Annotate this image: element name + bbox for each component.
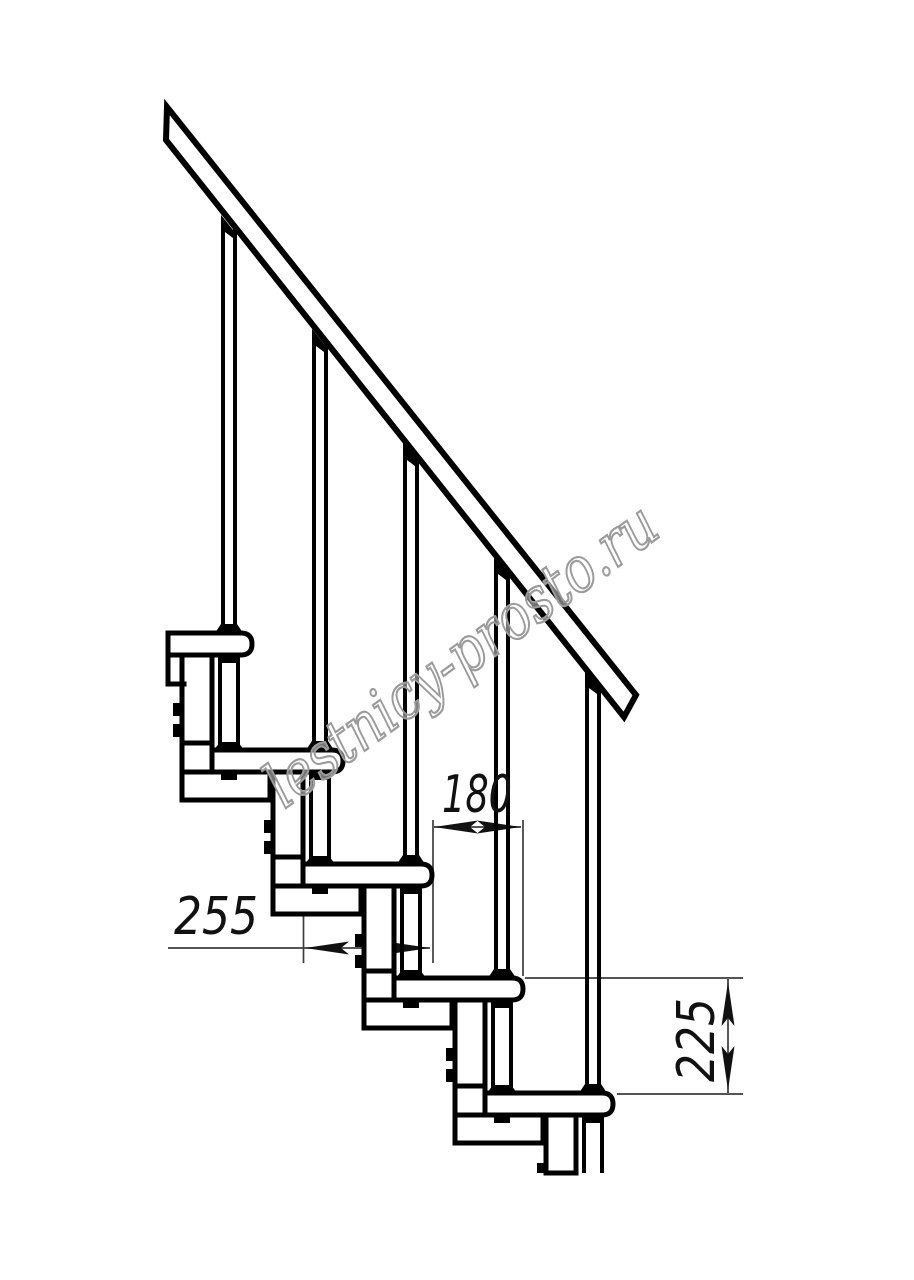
baluster-flange-icon	[579, 1084, 607, 1093]
dimension-label-rise: 225	[667, 998, 727, 1082]
nut-icon	[403, 1000, 419, 1008]
bolt-icon	[264, 820, 273, 833]
baluster	[585, 671, 601, 1093]
bolt-icon	[264, 841, 273, 854]
nut-icon	[221, 772, 237, 780]
baluster	[312, 329, 328, 750]
nut-icon	[585, 1115, 601, 1123]
dimension-label-tread-depth: 255	[174, 887, 258, 947]
bolt-icon	[446, 1048, 455, 1061]
tread	[303, 864, 432, 886]
dimension-labels: 180 255 225	[174, 765, 727, 1082]
bolt-icon	[355, 934, 364, 947]
nut-icon	[221, 655, 237, 663]
baluster-lower	[220, 655, 238, 750]
baluster-flange-icon	[397, 855, 425, 864]
bolt-icon	[446, 1069, 455, 1082]
nut-icon	[494, 1000, 510, 1008]
bolt-icon	[537, 1163, 546, 1173]
tread	[485, 1093, 613, 1115]
nut-icon	[312, 886, 328, 894]
baluster-lower	[584, 1115, 602, 1173]
baluster-lower	[402, 886, 420, 978]
baluster	[221, 215, 237, 633]
tread	[394, 978, 523, 1000]
baluster-flange-icon	[488, 969, 516, 978]
bolt-icon	[173, 724, 182, 737]
baluster-lower	[493, 1000, 511, 1093]
bolt-icon	[173, 703, 182, 716]
nut-icon	[494, 1115, 510, 1123]
nut-icon	[403, 886, 419, 894]
staircase-side-view-drawing: 180 255 225 lestnicy-prosto.ru	[0, 0, 914, 1280]
bolt-icon	[355, 955, 364, 968]
baluster-flange-icon	[215, 624, 243, 633]
dimension-label-going: 180	[442, 765, 512, 825]
technical-drawing-canvas: 180 255 225 lestnicy-prosto.ru	[0, 0, 914, 1280]
tread	[168, 633, 252, 655]
